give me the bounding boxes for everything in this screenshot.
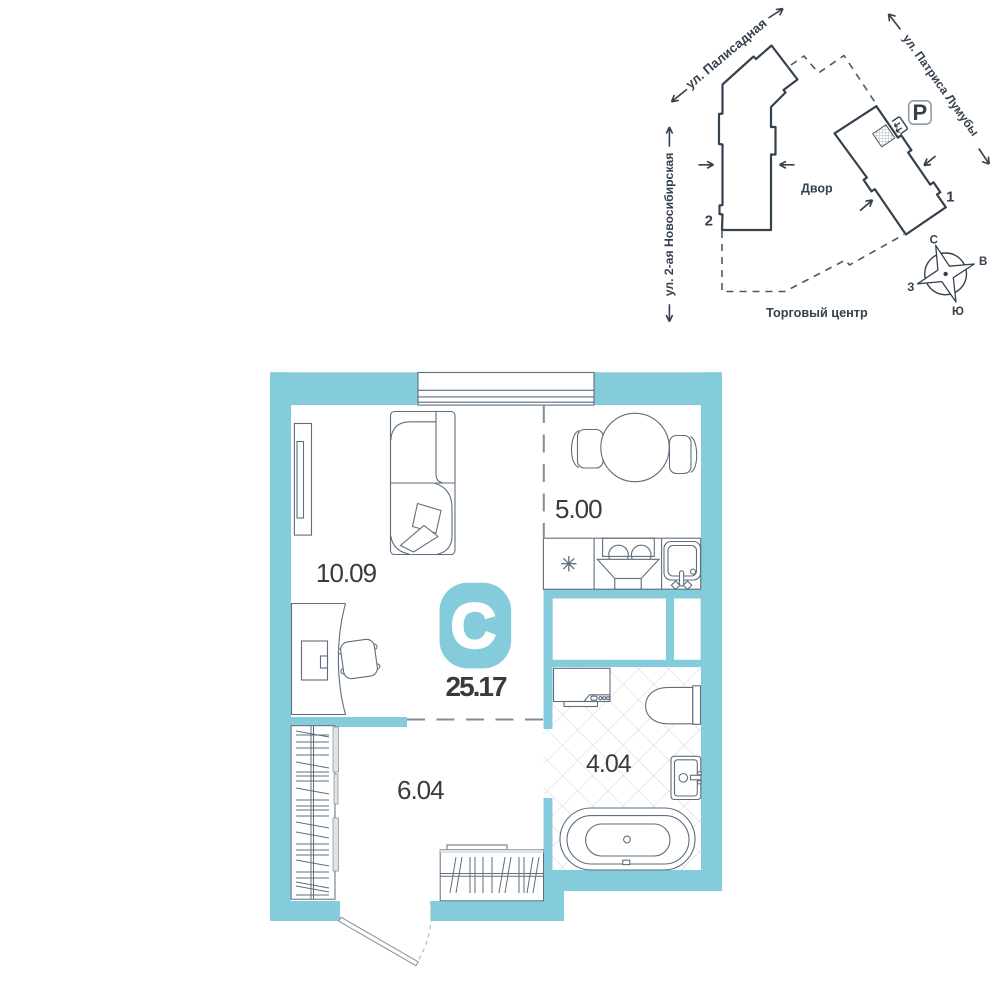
svg-text:В: В: [979, 256, 987, 268]
svg-text:2: 2: [705, 213, 713, 230]
svg-text:10.09: 10.09: [316, 558, 377, 588]
svg-text:Торговый центр: Торговый центр: [766, 306, 868, 320]
svg-text:С: С: [930, 235, 938, 247]
svg-text:4.04: 4.04: [586, 750, 632, 778]
svg-text:З: З: [907, 282, 914, 294]
svg-text:25.17: 25.17: [446, 671, 507, 702]
svg-text:1: 1: [946, 188, 954, 205]
svg-text:ул. 2-ая Новосибирская: ул. 2-ая Новосибирская: [662, 153, 676, 297]
svg-text:5.00: 5.00: [555, 494, 602, 524]
svg-text:P: P: [913, 100, 928, 125]
svg-text:Двор: Двор: [801, 182, 833, 196]
svg-text:6.04: 6.04: [397, 775, 444, 805]
svg-text:C: C: [451, 592, 497, 662]
svg-text:Ю: Ю: [952, 306, 964, 318]
